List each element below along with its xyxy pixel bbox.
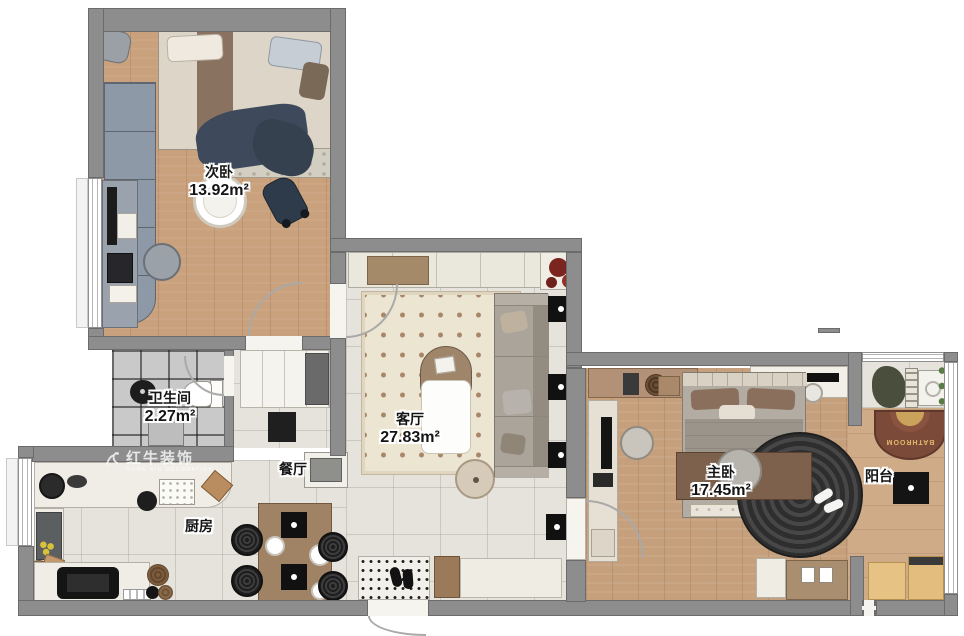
wall-segment <box>944 352 958 362</box>
dining-chair <box>231 565 263 597</box>
wall-segment <box>566 352 862 366</box>
monitor <box>107 187 117 245</box>
slipper <box>402 569 413 590</box>
kettle <box>137 491 157 511</box>
sideboard-wood-section <box>367 256 429 285</box>
balcony-cabinet <box>868 562 906 600</box>
black-mat <box>893 472 929 504</box>
plant <box>872 366 906 408</box>
tv-sideboard <box>348 252 568 288</box>
nightstand <box>658 376 680 396</box>
brand-name: 红牛装饰 <box>126 451 214 466</box>
dining-chair <box>318 532 348 562</box>
desk-drawer <box>109 285 137 303</box>
entry-doormat <box>358 556 430 600</box>
brand-tagline: HONG NIU DECORATION <box>126 468 214 473</box>
wall-segment <box>88 336 246 350</box>
basket <box>147 564 169 586</box>
pillow <box>166 34 223 63</box>
entry-door-arc <box>368 616 426 636</box>
wall-segment <box>88 8 340 32</box>
sofa-pillow <box>500 432 527 455</box>
entry-door-opening <box>368 600 428 616</box>
vanity-stool <box>620 426 654 460</box>
window-sill <box>76 178 88 328</box>
round-rug <box>193 174 247 228</box>
wall-segment <box>18 600 368 616</box>
book <box>819 567 833 583</box>
wall-segment <box>944 594 958 616</box>
shower-tray <box>148 422 184 446</box>
sofa-seam <box>495 416 549 417</box>
sofa <box>494 293 548 477</box>
doormat-text: BATHROOM <box>876 438 944 445</box>
drying-rack <box>905 368 918 408</box>
console-table <box>304 452 348 488</box>
brand-logo-icon <box>104 450 122 473</box>
window-sill <box>6 458 18 546</box>
plate <box>265 536 285 556</box>
basket <box>158 585 173 600</box>
ottoman <box>455 459 495 499</box>
floor-plan: BATHROOM 次卧 13.92m² 卫生间 2.27m² <box>0 0 964 636</box>
dining-chair <box>231 524 263 556</box>
sideboard-wood <box>786 560 848 600</box>
window <box>18 458 32 546</box>
cabinet-item <box>593 473 613 487</box>
wall-segment <box>566 252 582 368</box>
floor-cushion <box>268 412 296 442</box>
window <box>88 178 102 328</box>
wall-segment <box>566 368 586 498</box>
book <box>801 567 815 583</box>
ottoman-button <box>473 477 479 483</box>
shoe-cabinet <box>434 556 460 598</box>
wall-segment <box>428 600 852 616</box>
wall-segment <box>330 238 582 252</box>
balcony-threshold <box>862 600 876 616</box>
sofa-armrest <box>495 466 549 478</box>
window <box>862 352 944 362</box>
door-leaf <box>566 498 586 560</box>
door-opening <box>224 356 234 396</box>
door-opening <box>246 336 302 350</box>
sofa-back <box>533 294 549 478</box>
sofa-pillow <box>499 310 528 334</box>
kitchen-counter-bottom <box>34 562 150 602</box>
console-top <box>310 458 342 482</box>
dining-chair <box>318 571 348 601</box>
sofa-throw <box>502 389 532 415</box>
pan <box>67 475 87 488</box>
wall-segment <box>18 446 34 458</box>
sofa-seam <box>495 356 549 357</box>
exterior-ledge <box>818 328 840 333</box>
mat-dot <box>908 485 914 491</box>
side-table <box>546 514 568 540</box>
table-tray <box>434 356 456 375</box>
door-opening <box>330 284 346 338</box>
brand-watermark: 红牛装饰 HONG NIU DECORATION <box>104 450 214 473</box>
bathroom-sink <box>130 380 156 404</box>
window <box>944 362 958 594</box>
slipper <box>389 566 404 588</box>
frying-pan <box>39 473 65 499</box>
wall-segment <box>848 352 862 426</box>
hallway-cabinet <box>240 350 330 408</box>
headboard <box>683 373 807 386</box>
speaker-disc <box>803 383 823 403</box>
coffee-table-white <box>421 380 471 454</box>
round-cushion <box>716 448 762 494</box>
desk-chair <box>143 243 181 281</box>
desk-tray <box>117 213 137 239</box>
folded-blanket <box>298 61 330 101</box>
sink-drain <box>140 389 145 394</box>
sofa-armrest <box>495 294 549 306</box>
tv-on-cabinet <box>601 417 612 469</box>
cooker-grate <box>67 574 109 592</box>
balcony-cabinet <box>908 556 944 600</box>
kitchen-sink <box>159 479 195 505</box>
slipper <box>823 498 845 514</box>
wall-segment <box>330 252 346 284</box>
desk-pc <box>107 253 133 283</box>
wall-segment <box>88 8 104 178</box>
entry-bench <box>460 558 562 598</box>
pendant-tray <box>281 512 307 538</box>
cabinet-top <box>909 557 943 565</box>
range-cooker <box>57 567 119 599</box>
red-flowers <box>546 277 557 288</box>
pendant-tray <box>281 564 307 590</box>
wall-segment <box>330 338 346 456</box>
wall-segment <box>566 560 586 602</box>
shelf-books <box>623 373 639 395</box>
sideboard-white <box>756 558 786 598</box>
desk <box>102 180 138 328</box>
wall-segment <box>330 8 346 252</box>
water-heater <box>305 353 329 405</box>
